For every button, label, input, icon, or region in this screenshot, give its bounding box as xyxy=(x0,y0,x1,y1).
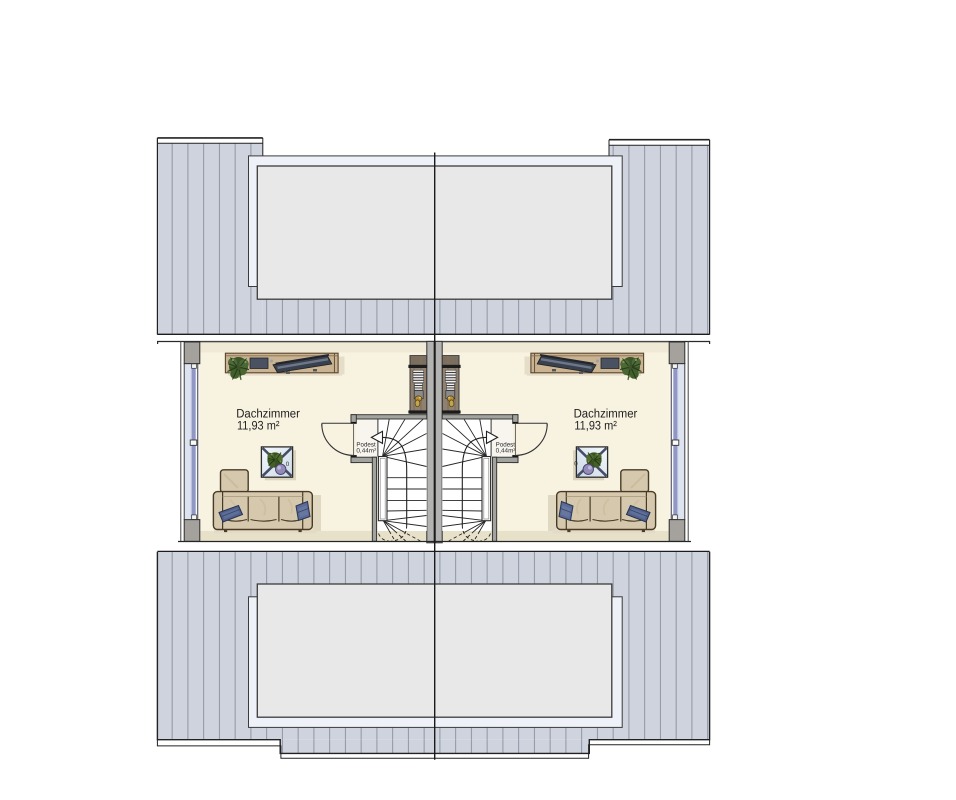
svg-text:0: 0 xyxy=(286,461,290,468)
svg-text:0: 0 xyxy=(574,461,578,468)
svg-text:0,44m²: 0,44m² xyxy=(356,448,376,455)
svg-text:11,93 m²: 11,93 m² xyxy=(237,419,280,433)
svg-text:0,44m²: 0,44m² xyxy=(496,448,516,455)
svg-text:11,93 m²: 11,93 m² xyxy=(574,419,617,433)
